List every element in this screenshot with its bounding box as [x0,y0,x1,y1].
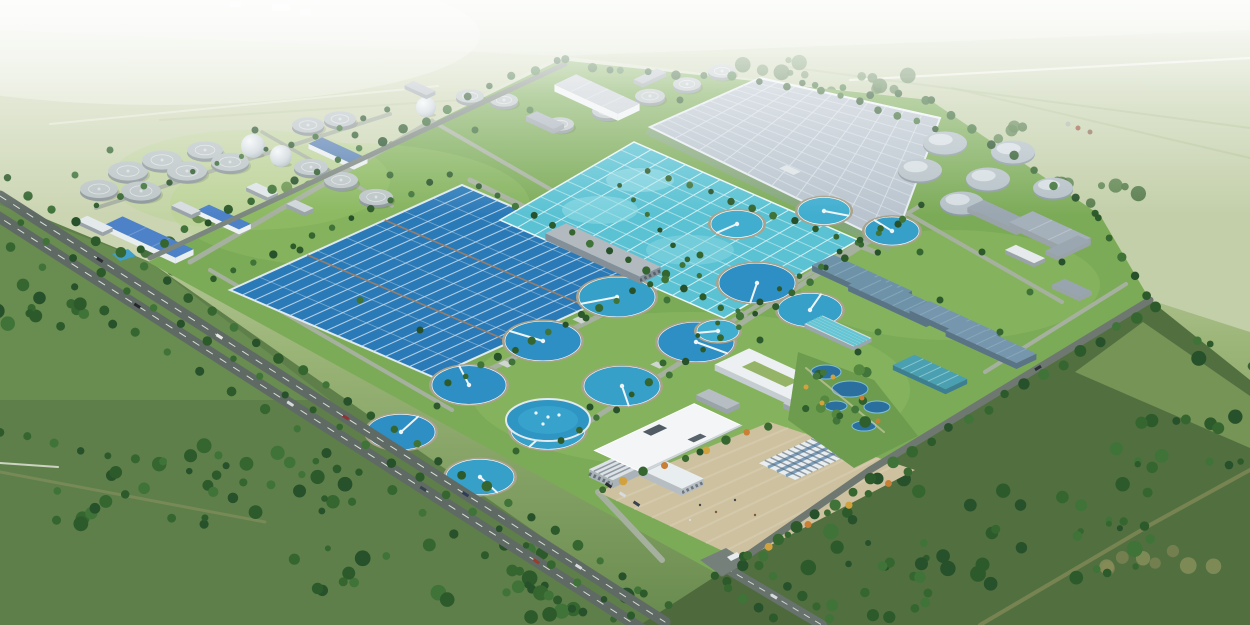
garden-trees [854,364,865,375]
forest-mass [1146,462,1157,473]
highway-median-trees [230,355,236,361]
forest-mass [920,539,928,547]
site-tree-row [666,372,673,379]
site-tree-row [875,249,881,255]
boundary-tree-row [758,551,768,561]
forest-mass [920,598,930,608]
boundary-tree-row [927,437,936,446]
scattered-trees [434,403,441,410]
clarifier [478,475,482,479]
forest-mass [312,583,323,594]
garden-trees [859,416,871,428]
site-tree-row [494,353,502,361]
highway-tree-row [482,481,493,492]
highway-median-trees [17,219,24,226]
hedgerow [212,470,222,480]
highway-tree-row [183,293,193,303]
highway-median-trees [496,525,503,532]
highway-tree-row [322,381,329,388]
highway-tree-row [294,425,301,432]
forest-mass [1207,341,1214,348]
forest-mass [1143,488,1153,498]
highway-tree-row [551,526,560,535]
forest-mass [1015,499,1027,511]
boundary-tree-row [1106,235,1113,242]
highway-tree-row [449,529,458,538]
avenue-tree-row [724,584,732,592]
boundary-tree-row [737,560,748,571]
forest-mass [271,446,285,460]
landscape-pond-inner [518,406,578,434]
site-tree-row [290,243,296,249]
forest-mass [167,514,176,523]
highway-tree-row [71,217,80,226]
highway-median-trees [573,578,581,586]
forest-mass [138,483,150,495]
forest-mass [73,516,88,531]
forest-mass [310,470,324,484]
dirt-patch [1206,559,1222,575]
forest-mass [1145,534,1154,543]
highway-tree-row [298,365,308,375]
fountain [546,415,549,418]
highway-tree-row [355,469,362,476]
boundary-tree-row [1150,301,1161,312]
highway-tree-row [618,572,626,580]
boundary-tree-row [160,239,169,248]
forest-mass [1237,458,1243,464]
site-tree-row [269,250,277,258]
plaza-tree-row [805,521,812,528]
highway-tree-row [207,306,216,315]
site-tree-row [699,293,706,300]
clarifier [890,229,894,233]
site-tree-row [788,289,795,296]
forest-mass [1172,417,1180,425]
highway-tree-row [91,236,101,246]
forest-mass [121,490,130,499]
basin-dike-trees [685,257,691,263]
forest-mass [848,515,858,525]
site-tree-row [613,406,620,413]
site-tree-row [841,254,849,262]
site-tree-row [700,347,706,353]
dirt-patch [1116,551,1129,564]
forest-mass [109,466,122,479]
site-tree-row [569,229,575,235]
forest-mass [1103,569,1112,578]
forest-mass [342,568,352,578]
forest-mass [845,561,852,568]
wwtp-aerial-rendering [0,0,1250,625]
highway-tree-row [515,567,524,576]
boundary-tree-row [137,245,145,253]
forest-mass [1132,563,1138,569]
haze-overlay-top [0,0,1250,95]
plaza-tree-row [721,435,730,444]
forest-mass [289,554,300,565]
site-tree-row [645,378,653,386]
avenue-tree-row [825,614,834,623]
highway-tree-row [99,306,109,316]
scattered-trees [513,448,520,455]
site-tree-row [812,226,819,233]
plaza-tree-row [865,490,872,497]
site-tree-row [797,273,803,279]
forest-mass [878,561,888,571]
basin-dike-trees [697,273,702,278]
site-tree-row [528,337,536,345]
forest-mass [223,462,230,469]
highway-median-trees [523,542,529,548]
dirt-patch [1167,545,1179,557]
highway-median-trees [42,238,49,245]
scattered-trees [660,360,667,367]
forest-mass [984,577,998,591]
basin-dike-trees [670,242,676,248]
boundary-tree-row [1142,291,1151,300]
boundary-tree-row [1038,369,1049,380]
scattered-trees [937,297,944,304]
site-tree-row [877,225,884,232]
garden-trees [802,405,809,412]
highway-median-trees [547,560,556,569]
hedgerow [104,452,111,459]
hedgerow [23,432,31,440]
forest-mass [326,495,339,508]
scattered-trees [979,249,986,256]
forest-mass [333,465,342,474]
site-tree-row [250,259,256,265]
forest-mass [249,505,263,519]
highway-tree-row [71,283,78,290]
site-tree-row [586,240,594,248]
clarifier [399,430,403,434]
boundary-tree-row [810,509,820,519]
highway-tree-row [140,262,148,270]
boundary-tree-row [887,456,899,468]
scattered-trees [587,404,594,411]
forest-mass [1056,491,1069,504]
highway-median-trees [361,440,370,449]
highway-median-trees [415,472,424,481]
highway-tree-row [481,551,489,559]
hedgerow [77,447,84,454]
site-tree-row [463,374,469,380]
highway-tree-row [457,471,466,480]
highway-median-trees [387,458,397,468]
scattered-trees [855,349,862,356]
scattered-trees [697,449,704,456]
pedestrians [689,519,691,521]
forest-mass [823,524,839,540]
clarifier [716,329,720,333]
scattered-trees [297,247,304,254]
forest-mass [197,438,212,453]
hedgerow [50,439,59,448]
site-tree-row [606,247,613,254]
dirt-patch [1150,558,1161,569]
hedgerow [321,495,328,502]
plaza-tree-row [682,455,689,462]
highway-median-trees [150,304,157,311]
forest-mass [56,322,65,331]
boundary-tree-row [1112,322,1121,331]
forest-mass [512,580,525,593]
highway-tree-row [131,328,140,337]
forest-mass [355,550,371,566]
highway-tree-row [195,367,204,376]
hedgerow [239,478,247,486]
fountain [541,422,544,425]
highway-tree-row [527,513,535,521]
plaza-tree-row [764,423,772,431]
highway-tree-row [343,397,352,406]
clarifier [808,308,812,312]
highway-tree-row [163,276,172,285]
boundary-tree-row [1131,272,1139,280]
boundary-tree-row [1000,390,1008,398]
site-tree-row [837,249,843,255]
site-tree-row [752,311,758,317]
scattered-trees [917,249,924,256]
garden-trees [813,372,820,379]
boundary-tree-row [830,500,841,511]
pedestrians [715,511,717,513]
dirt-patch [1180,557,1197,574]
site-tree-row [349,215,355,221]
boundary-tree-row [1059,360,1069,370]
forest-mass [1193,337,1201,345]
site-tree-row [680,285,688,293]
forest-mass [1069,571,1083,585]
hedgerow [186,468,193,475]
plaza-tree-row [702,446,710,454]
plaza-tree-row [885,480,892,487]
site-tree-row [329,225,335,231]
garden-trees [851,406,859,414]
aeration-water-sheen [646,235,734,265]
boundary-tree-row [1117,252,1126,261]
hedgerow [267,480,276,489]
highway-tree-row [39,263,47,271]
forest-mass [33,292,46,305]
site-tree-row [857,237,864,244]
forest-mass [1181,414,1191,424]
site-tree-row [679,262,685,268]
forest-mass [1228,409,1242,423]
site-tree-row [595,304,603,312]
highway-tree-row [164,348,171,355]
flowering-trees [820,401,825,406]
scattered-trees [583,315,590,322]
garden-trees [836,412,843,419]
flowering-trees [860,396,865,401]
boundary-tree-row [773,534,784,545]
highway-tree-row [273,353,284,364]
clarifier [755,281,759,285]
highway-tree-row [573,540,584,551]
fountain [557,413,560,416]
highway-tree-row [504,499,512,507]
scattered-trees [875,329,882,336]
highway-median-trees [256,373,263,380]
plaza-tree-row [743,551,752,560]
highway-median-trees [627,612,635,620]
forest-mass [1127,541,1143,557]
pedestrians [734,499,736,501]
scattered-trees [509,359,516,366]
site-tree-row [477,361,484,368]
forest-mass [1191,351,1206,366]
site-tree-row [718,305,724,311]
site-tree-row [576,427,583,434]
highway-tree-row [116,247,127,258]
forest-mass [184,449,197,462]
flowering-trees [804,385,809,390]
forest-mass [1075,499,1087,511]
plaza-tree-row [824,509,831,516]
clarifier [541,339,545,343]
forest-mass [915,557,928,570]
site-tree-row [661,276,669,284]
boundary-tree-row [865,473,876,484]
plaza-tree-row [638,467,648,477]
highway-tree-row [6,242,16,252]
avenue-tree-row [769,572,777,580]
highway-tree-row [260,404,270,414]
avenue-tree-row [711,572,719,580]
forest-mass [1110,442,1123,455]
forest-mass [924,589,933,598]
forest-mass [801,560,817,576]
boundary-tree-row [944,423,953,432]
eco-pond [864,401,890,413]
flowering-trees [876,419,881,424]
forest-mass [54,487,62,495]
highway-tree-row [665,601,673,609]
boundary-tree-row [1074,345,1086,357]
site-tree-row [642,266,650,274]
plaza-tree-row [765,543,773,551]
site-tree-row [563,322,569,328]
avenue-tree-row [783,582,792,591]
site-tree-row [309,232,316,239]
plaza-tree-row [619,477,628,486]
forest-mass [914,571,925,582]
forest-mass [1155,449,1169,463]
forest-mass [201,514,208,521]
garden-trees [820,369,827,376]
forest-mass [1140,521,1149,530]
highway-tree-row [419,509,427,517]
forest-mass [1225,461,1234,470]
boundary-tree-row [906,446,918,458]
site-tree-row [512,347,519,354]
site-tree-row [647,281,653,287]
forest-mass [52,516,61,525]
forest-mass [883,611,895,623]
boundary-tree-row [1131,312,1143,324]
avenue-tree-row [738,594,748,604]
highway-tree-row [230,323,239,332]
forest-mass [325,545,331,551]
forest-mass [1,316,15,330]
boundary-tree-row [181,225,189,233]
scattered-trees [697,252,704,259]
highway-median-trees [97,268,106,277]
clarifier [467,383,471,387]
highway-tree-row [391,426,398,433]
forest-mass [1117,525,1123,531]
aerial-rendering-figure: Aerial rendering of a wastewater treatme… [0,0,1250,625]
scattered-trees [357,297,364,304]
avenue-tree-row [769,613,778,622]
forest-mass [240,457,254,471]
site-tree-row [558,437,565,444]
site-tree-row [593,414,599,420]
avenue-tree-row [754,561,763,570]
highway-median-trees [310,406,317,413]
highway-tree-row [367,411,376,420]
forest-mass [284,457,296,469]
highway-median-trees [336,424,343,431]
forest-mass [911,604,920,613]
forest-mass [1119,517,1127,525]
forest-mass [865,540,871,546]
site-tree-row [629,287,636,294]
plaza-tree-row [904,467,913,476]
site-tree-row [629,392,635,398]
scattered-trees [417,327,424,334]
forest-mass [502,588,510,596]
highway-median-trees [442,490,451,499]
plaza-tree-row [599,486,606,493]
hedgerow [348,498,356,506]
site-tree-row [772,303,779,310]
forest-mass [108,320,117,329]
hedgerow [294,485,302,493]
highway-median-trees [282,391,289,398]
flowering-trees [831,375,836,380]
site-tree-row [549,222,556,229]
plaza-tree-row [661,462,668,469]
highway-tree-row [434,457,442,465]
clarifier [694,340,698,344]
forest-mass [542,607,557,622]
forest-mass [423,538,436,551]
highway-tree-row [321,448,331,458]
pedestrians [754,514,756,516]
highway-median-trees [601,596,608,603]
forest-mass [382,552,390,560]
highway-tree-row [414,440,422,448]
forest-mass [312,458,319,465]
hedgerow [131,454,140,463]
highway-median-trees [69,254,77,262]
hedgerow [159,458,167,466]
highway-median-trees [203,336,213,346]
highway-tree-row [579,608,588,617]
scattered-trees [757,337,764,344]
site-tree-row [444,379,451,386]
clarifier [735,222,739,226]
site-tree-row [833,234,839,240]
forest-mass [17,279,30,292]
scattered-trees [997,329,1004,336]
site-tree-row [806,278,814,286]
avenue-tree-row [754,603,764,613]
